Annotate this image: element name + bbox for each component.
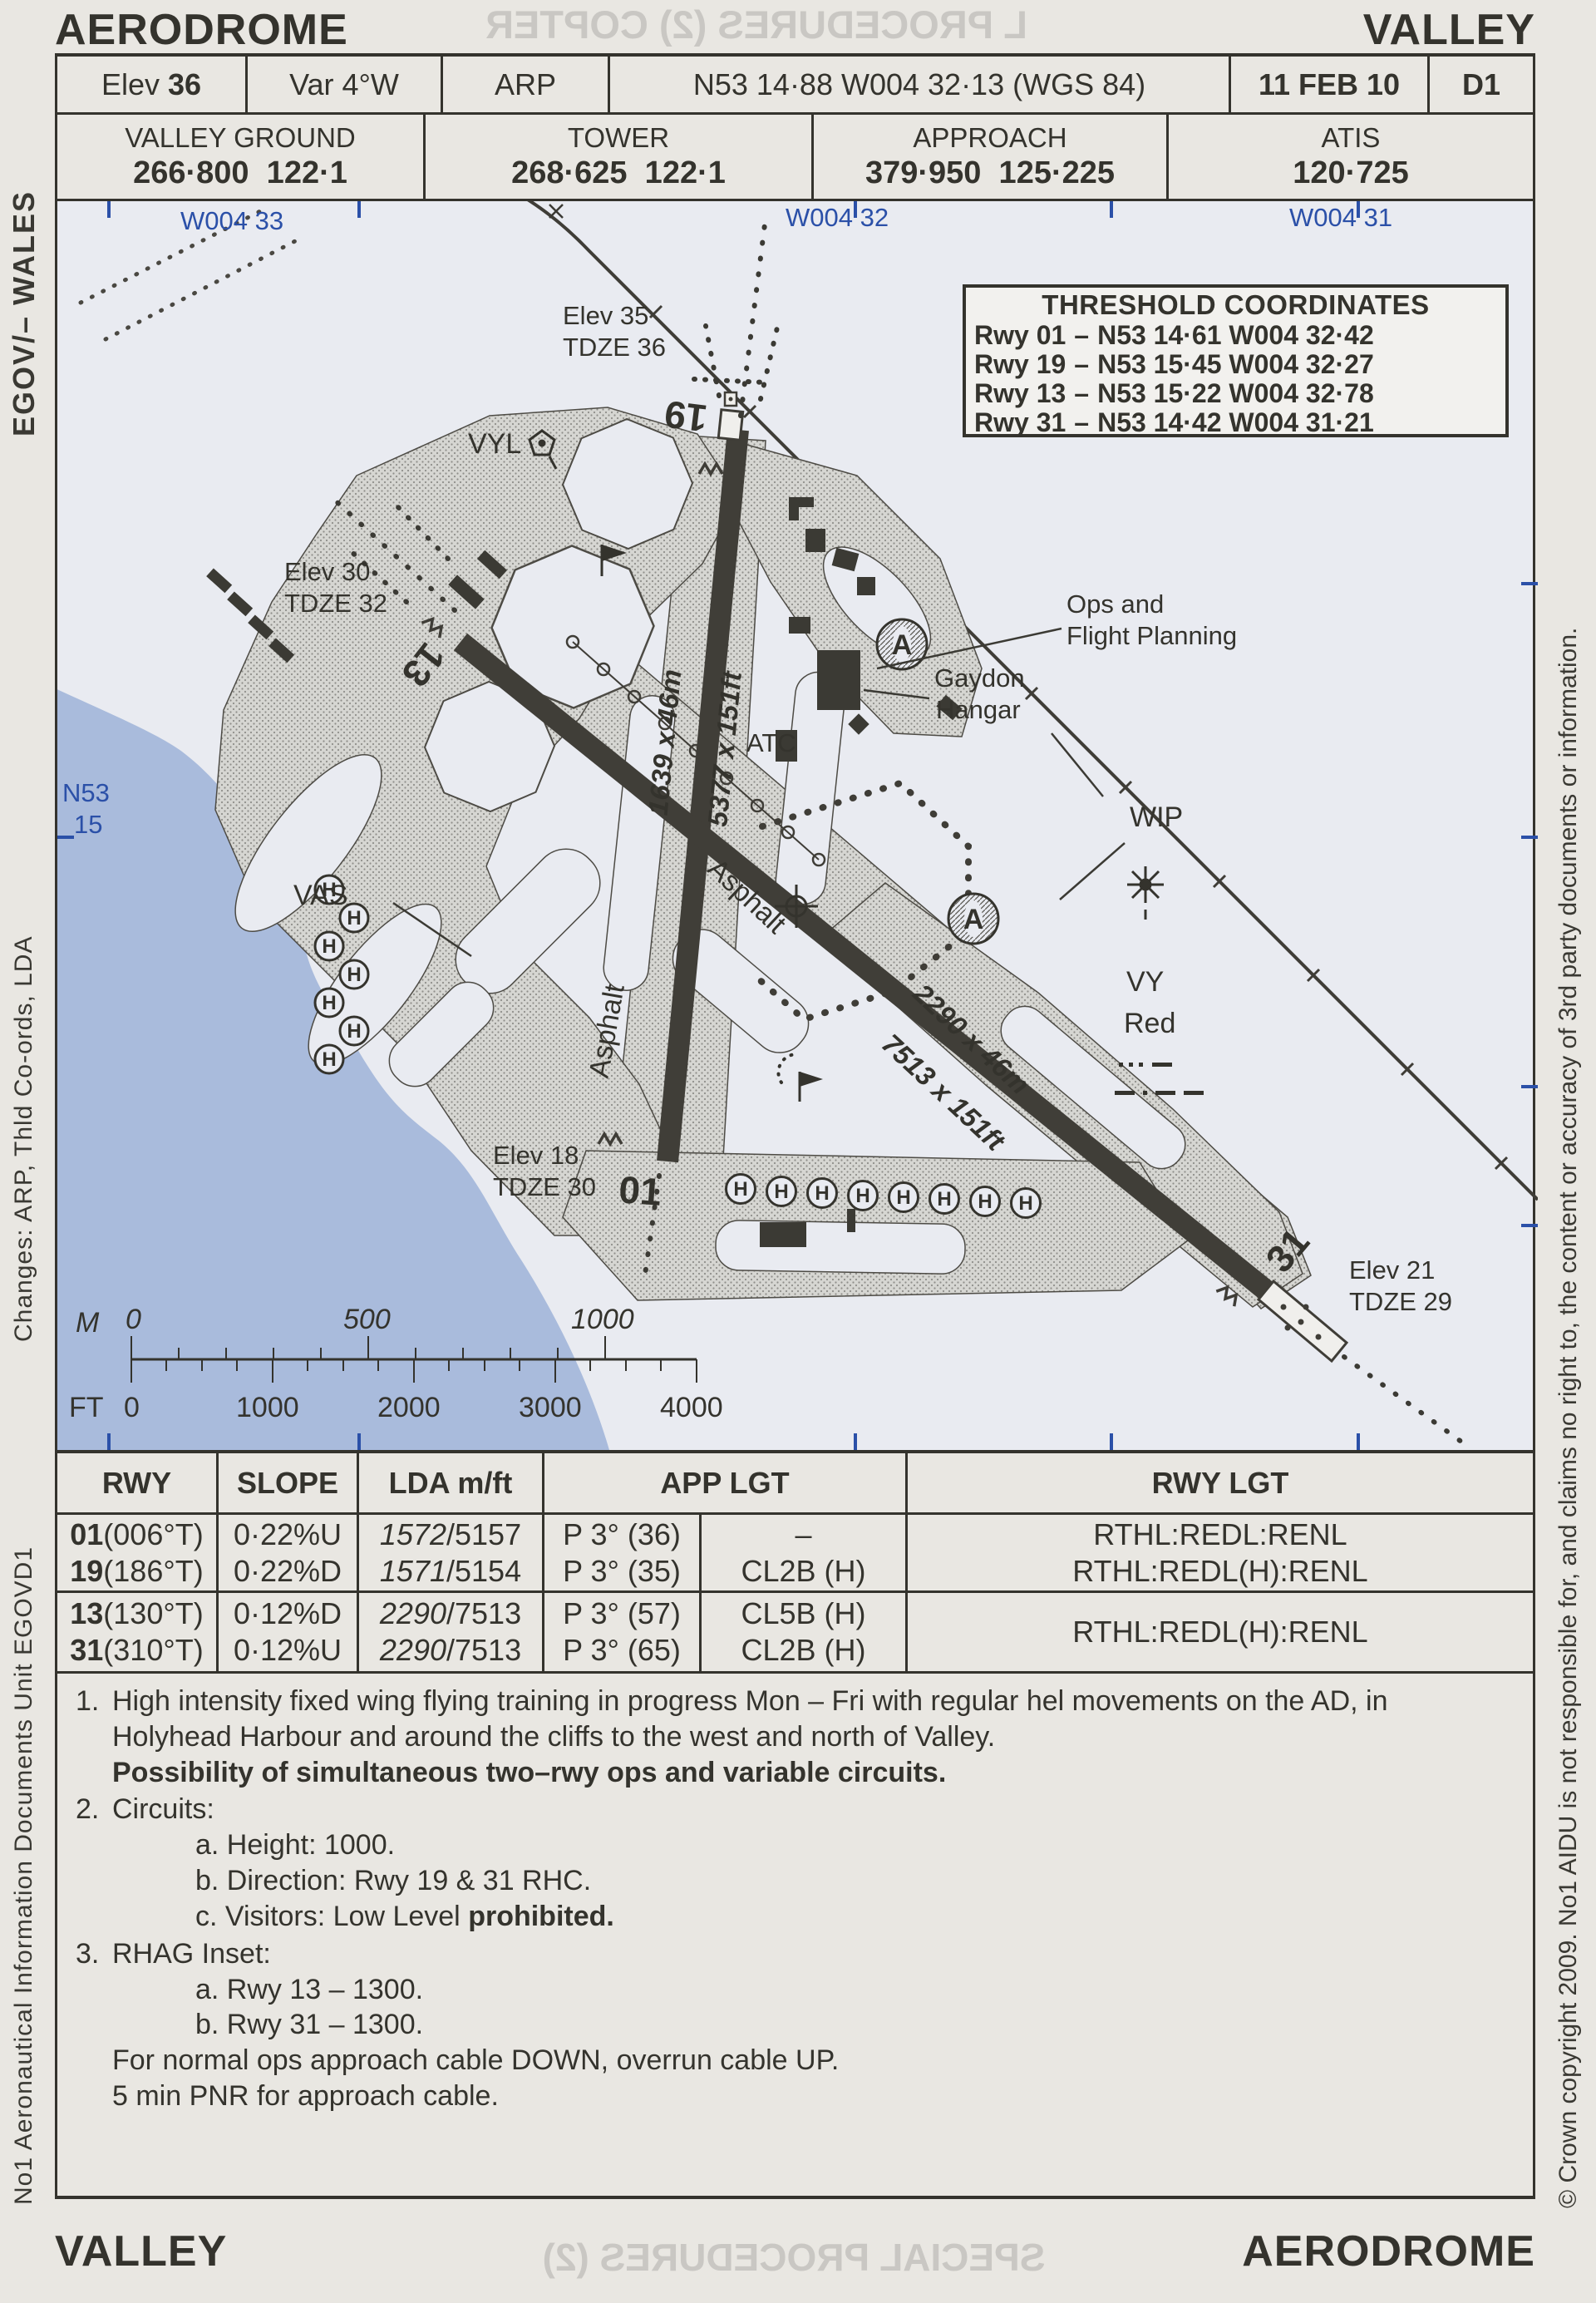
col-header-lda: LDA m/ft <box>359 1453 544 1515</box>
tdze-30-label: TDZE 30 <box>493 1172 596 1201</box>
cell-slope-g2: 0·12%D 0·12%U <box>219 1593 359 1671</box>
lat-label-n53: N53 <box>62 778 110 807</box>
note-1-bold-text: Possibility of simultaneous two–rwy ops … <box>112 1757 946 1788</box>
note-2c: c. Visitors: Low Level prohibited. <box>195 1899 1442 1935</box>
note-3-number: 3. <box>76 1936 112 2114</box>
svg-text:H: H <box>855 1185 869 1207</box>
variation-value: Var 4°W <box>289 67 399 102</box>
svg-text:H: H <box>347 907 361 930</box>
arp-label-cell: ARP <box>443 57 610 112</box>
freq-ground-value: 266·800 122·1 <box>133 155 347 193</box>
threshold-row: Rwy 01–N53 14·61 W004 32·42 <box>974 321 1497 350</box>
runway-data-table: RWY SLOPE LDA m/ft APP LGT RWY LGT 01(00… <box>55 1450 1535 1674</box>
header-info-row: Elev 36 Var 4°W ARP N53 14·88 W004 32·13… <box>55 53 1535 115</box>
freq-tower: TOWER 268·625 122·1 <box>426 115 814 199</box>
note-3a: a. Rwy 13 – 1300. <box>195 1972 1442 2008</box>
svg-text:H: H <box>322 935 336 958</box>
elev-35-label: Elev 35 <box>563 301 648 330</box>
vy-label: VY <box>1126 966 1164 998</box>
svg-text:H: H <box>896 1186 910 1209</box>
vyl-label: VYL <box>468 428 521 460</box>
cell-rwy-g2: 13(130°T) 31(310°T) <box>57 1593 219 1671</box>
sidebar-left-unit: No1 Aeronautical Information Documents U… <box>10 1407 38 2205</box>
lon-label-w00431: W004 31 <box>1289 203 1392 232</box>
sheet-code: D1 <box>1462 67 1500 102</box>
arp-label: ARP <box>495 67 556 102</box>
red-label: Red <box>1124 1008 1175 1039</box>
scale-m-label: M <box>76 1307 100 1339</box>
wip-label: WIP <box>1130 801 1183 833</box>
lon-label-w00433: W004 33 <box>180 206 283 235</box>
vy-red-light-icon <box>1127 866 1164 920</box>
scale-ft-3000: 3000 <box>519 1392 582 1423</box>
notes-section: 1. High intensity fixed wing flying trai… <box>55 1674 1535 2199</box>
threshold-coordinates-box: THRESHOLD COORDINATES Rwy 01–N53 14·61 W… <box>963 284 1509 437</box>
freq-ground-name: VALLEY GROUND <box>125 121 356 155</box>
cell-cl-g1: – CL2B (H) <box>702 1515 908 1593</box>
threshold-row: Rwy 19–N53 15·45 W004 32·27 <box>974 350 1497 379</box>
svg-text:H: H <box>322 992 336 1014</box>
sheet-cell: D1 <box>1430 57 1533 112</box>
col-header-rwy: RWY <box>57 1453 219 1515</box>
sidebar-left-changes: Changes: ARP, Thld Co-ords, LDA <box>10 810 38 1342</box>
note-2: 2. Circuits: a. Height: 1000. b. Directi… <box>76 1792 1516 1934</box>
tdze-36-label: TDZE 36 <box>563 333 666 362</box>
cell-slope-g1: 0·22%U 0·22%D <box>219 1515 359 1593</box>
elev-18-label: Elev 18 <box>493 1141 579 1170</box>
col-header-slope: SLOPE <box>219 1453 359 1515</box>
lon-label-w00432: W004 32 <box>786 203 889 232</box>
elev-value: 36 <box>168 67 201 102</box>
threshold-row: Rwy 31–N53 14·42 W004 31·21 <box>974 408 1497 437</box>
arp-coords: N53 14·88 W004 32·13 (WGS 84) <box>693 67 1145 102</box>
cell-lda-g2: 2290/7513 2290/7513 <box>359 1593 544 1671</box>
cell-papi-g2: P 3° (57) P 3° (65) <box>544 1593 702 1671</box>
sidebar-left-icao: EGOV/– WALES <box>7 87 42 436</box>
frequencies-row: VALLEY GROUND 266·800 122·1 TOWER 268·62… <box>55 115 1535 201</box>
aerodrome-chart-page: L PROCEDURES (2) COPTER Stables SPECIAL … <box>0 0 1596 2303</box>
scale-ft-4000: 4000 <box>660 1392 723 1423</box>
freq-atis-value: 120·725 <box>1293 155 1408 193</box>
cell-lda-g1: 1572/5157 1571/5154 <box>359 1515 544 1593</box>
note-1: 1. High intensity fixed wing flying trai… <box>76 1684 1516 1790</box>
gaydon-label-line1: Gaydon <box>934 663 1025 693</box>
note-2-number: 2. <box>76 1792 112 1934</box>
threshold-row: Rwy 13–N53 15·22 W004 32·78 <box>974 379 1497 408</box>
freq-approach-value: 379·950 125·225 <box>865 155 1115 193</box>
freq-approach: APPROACH 379·950 125·225 <box>814 115 1169 199</box>
title-row: AERODROME VALLEY <box>55 5 1535 53</box>
note-3b: b. Rwy 31 – 1300. <box>195 2007 1442 2043</box>
freq-atis-name: ATIS <box>1322 121 1381 155</box>
gaydon-label-line2: Hangar <box>936 695 1021 724</box>
freq-tower-value: 268·625 122·1 <box>511 155 726 193</box>
lat-label-15: 15 <box>74 810 102 839</box>
note-2b: b. Direction: Rwy 19 & 31 RHC. <box>195 1863 1442 1899</box>
footer-title-right: AERODROME <box>1242 2227 1535 2276</box>
dispersal-letter: A <box>892 629 913 661</box>
scale-m-1000: 1000 <box>571 1304 634 1335</box>
cell-rwylgt-g2: RTHL:REDL(H):RENL <box>908 1593 1533 1671</box>
scale-ft-1000: 1000 <box>236 1392 299 1423</box>
svg-text:H: H <box>978 1191 992 1213</box>
freq-approach-name: APPROACH <box>913 121 1066 155</box>
page-title-right: VALLEY <box>1363 5 1535 55</box>
dispersal-symbol-1: A <box>877 619 927 669</box>
elev-30-label: Elev 30 <box>284 557 370 586</box>
note-1-number: 1. <box>76 1684 112 1790</box>
ops-label-line2: Flight Planning <box>1066 621 1237 650</box>
dispersal-symbol-2: A <box>948 894 998 944</box>
scale-ft-2000: 2000 <box>377 1392 441 1423</box>
freq-atis: ATIS 120·725 <box>1169 115 1533 199</box>
svg-text:H: H <box>733 1178 747 1201</box>
threshold-box-title: THRESHOLD COORDINATES <box>974 289 1497 321</box>
effective-date: 11 FEB 10 <box>1259 67 1400 102</box>
vas-label: VAS <box>293 880 348 911</box>
aerodrome-map: A A <box>55 201 1535 1450</box>
scale-m-500: 500 <box>343 1304 391 1335</box>
page-title-left: AERODROME <box>55 5 348 55</box>
freq-ground: VALLEY GROUND 266·800 122·1 <box>57 115 426 199</box>
note-2-text: Circuits: <box>112 1793 214 1825</box>
note-3-tail-1: For normal ops approach cable DOWN, over… <box>112 2043 1442 2079</box>
elevation-cell: Elev 36 <box>57 57 248 112</box>
chart-content: AERODROME VALLEY Elev 36 Var 4°W ARP N53… <box>55 5 1535 2199</box>
note-3-text: RHAG Inset: <box>112 1938 271 1970</box>
scale-ft-label: FT <box>69 1392 104 1423</box>
runway-01-numeral: 01 <box>618 1167 663 1213</box>
atc-label: ATC <box>746 728 796 757</box>
cell-papi-g1: P 3° (36) P 3° (35) <box>544 1515 702 1593</box>
scale-ft-0: 0 <box>124 1392 140 1423</box>
freq-tower-name: TOWER <box>568 121 669 155</box>
dispersal-letter: A <box>963 904 984 935</box>
arp-coords-cell: N53 14·88 W004 32·13 (WGS 84) <box>610 57 1231 112</box>
cell-rwylgt-g1: RTHL:REDL:RENL RTHL:REDL(H):RENL <box>908 1515 1533 1593</box>
svg-text:H: H <box>347 1020 361 1043</box>
variation-cell: Var 4°W <box>248 57 443 112</box>
cell-cl-g2: CL5B (H) CL2B (H) <box>702 1593 908 1671</box>
svg-text:H: H <box>347 964 361 986</box>
ops-label-line1: Ops and <box>1066 589 1164 619</box>
runway-19-numeral: 19 <box>662 392 709 441</box>
svg-text:H: H <box>322 1048 336 1071</box>
svg-text:H: H <box>774 1181 788 1203</box>
scale-m-0: 0 <box>126 1304 141 1335</box>
svg-text:H: H <box>937 1188 951 1211</box>
svg-text:H: H <box>1018 1192 1032 1215</box>
footer-title-left: VALLEY <box>55 2227 227 2276</box>
tdze-29-label: TDZE 29 <box>1349 1287 1452 1316</box>
note-2a: a. Height: 1000. <box>195 1827 1442 1863</box>
tdze-32-label: TDZE 32 <box>284 589 387 618</box>
footer-row: VALLEY AERODROME <box>55 2227 1535 2276</box>
cell-rwy-g1: 01(006°T) 19(186°T) <box>57 1515 219 1593</box>
col-header-applgt: APP LGT <box>544 1453 908 1515</box>
sidebar-right-copyright: © Crown copyright 2009. No1 AIDU is not … <box>1554 92 1583 2208</box>
col-header-rwylgt: RWY LGT <box>908 1453 1533 1515</box>
elev-label: Elev <box>101 67 160 102</box>
note-3: 3. RHAG Inset: a. Rwy 13 – 1300. b. Rwy … <box>76 1936 1516 2114</box>
note-1-text: High intensity fixed wing flying trainin… <box>112 1685 1388 1753</box>
date-cell: 11 FEB 10 <box>1231 57 1430 112</box>
svg-text:H: H <box>815 1182 829 1205</box>
note-3-tail-2: 5 min PNR for approach cable. <box>112 2079 1442 2114</box>
elev-21-label: Elev 21 <box>1349 1255 1435 1285</box>
